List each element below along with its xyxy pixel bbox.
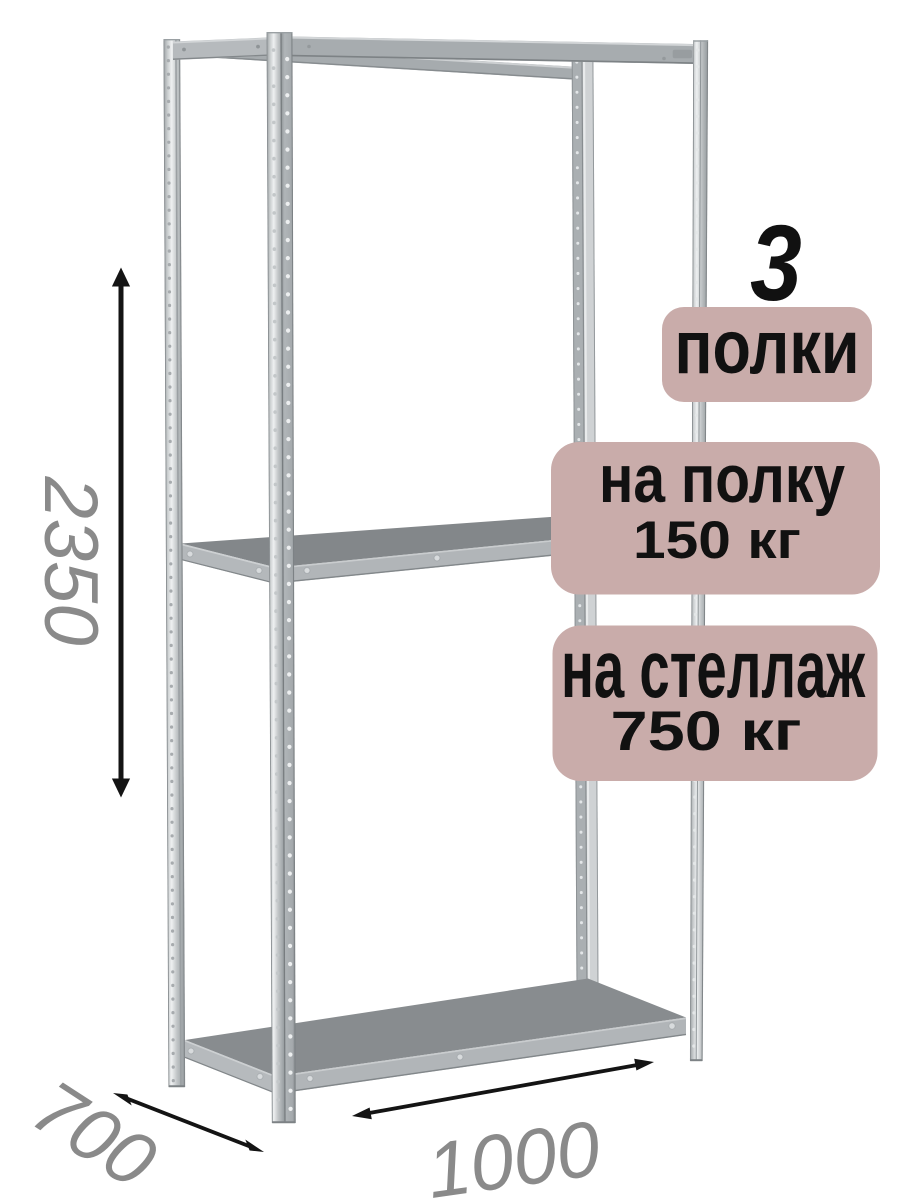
svg-text:полки: полки (675, 305, 860, 390)
svg-text:150 кг: 150 кг (633, 511, 801, 570)
svg-text:на полку: на полку (599, 441, 845, 517)
svg-text:750 кг: 750 кг (611, 699, 802, 762)
svg-text:2350: 2350 (28, 475, 113, 645)
